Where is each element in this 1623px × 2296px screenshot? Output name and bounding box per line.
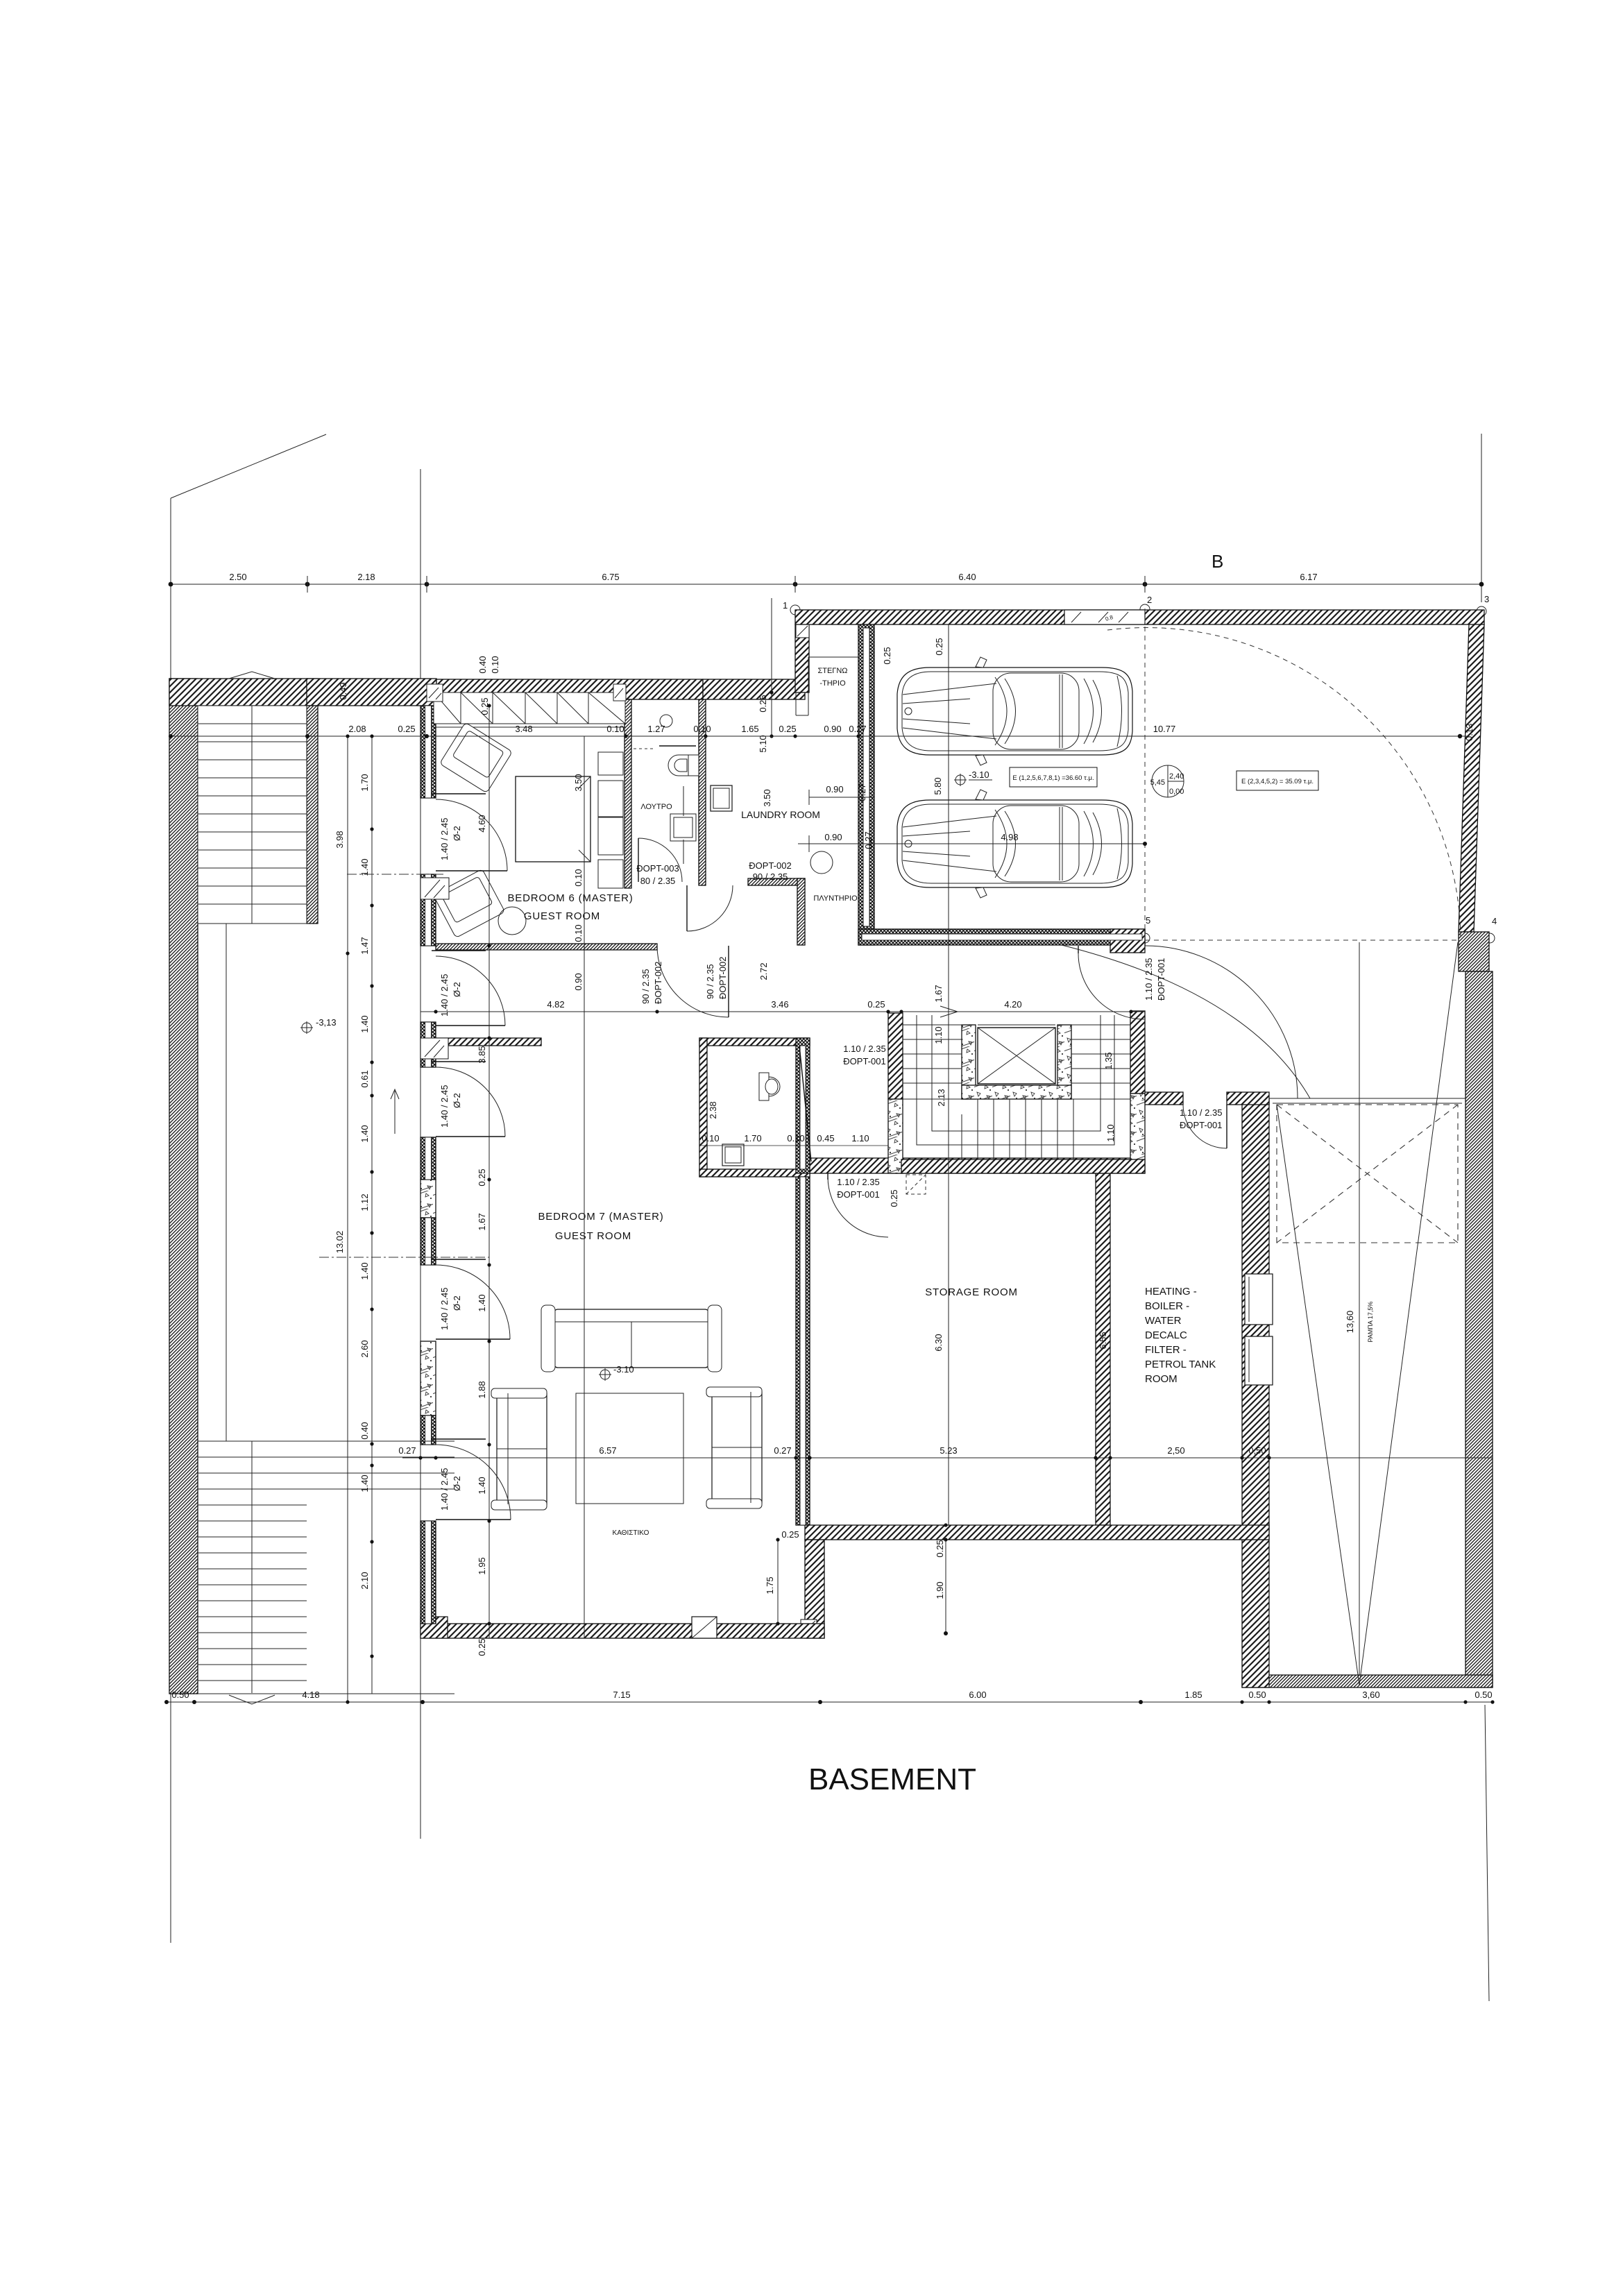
svg-text:1.35: 1.35	[1103, 1052, 1114, 1069]
svg-text:0.10: 0.10	[787, 1133, 804, 1143]
svg-text:0,50: 0,50	[1248, 1445, 1266, 1456]
svg-text:2.60: 2.60	[359, 1340, 370, 1357]
svg-text:3.85: 3.85	[477, 1046, 487, 1063]
svg-text:6.55: 6.55	[1098, 1332, 1108, 1349]
svg-text:Ø-2: Ø-2	[452, 1295, 462, 1311]
svg-text:1.85: 1.85	[1184, 1690, 1202, 1700]
svg-text:0.50: 0.50	[171, 1690, 189, 1700]
svg-text:-3.10: -3.10	[613, 1364, 634, 1375]
svg-text:FILTER -: FILTER -	[1145, 1344, 1187, 1356]
svg-text:3.50: 3.50	[573, 774, 584, 791]
svg-text:5.23: 5.23	[940, 1445, 957, 1456]
svg-text:-3,13: -3,13	[316, 1017, 337, 1028]
svg-text:13.02: 13.02	[334, 1231, 345, 1254]
svg-text:GUEST ROOM: GUEST ROOM	[524, 910, 600, 922]
svg-text:ΠΛΥΝΤΗΡΙΟ: ΠΛΥΝΤΗΡΙΟ	[813, 894, 858, 903]
svg-text:1.88: 1.88	[477, 1381, 487, 1398]
svg-text:7.15: 7.15	[613, 1690, 630, 1700]
svg-text:1.70: 1.70	[359, 774, 370, 791]
svg-text:ΚΑΘΙΣΤΙΚΟ: ΚΑΘΙΣΤΙΚΟ	[613, 1529, 649, 1537]
svg-text:1.40: 1.40	[359, 858, 370, 876]
svg-text:0.25: 0.25	[758, 695, 768, 712]
svg-text:GUEST ROOM: GUEST ROOM	[555, 1230, 631, 1242]
svg-text:1.10: 1.10	[1105, 1124, 1116, 1141]
svg-text:4.20: 4.20	[1004, 999, 1021, 1010]
svg-text:1.10: 1.10	[933, 1026, 944, 1044]
svg-text:0.25: 0.25	[867, 999, 885, 1010]
svg-text:1.40 / 2.45: 1.40 / 2.45	[439, 1288, 450, 1330]
svg-text:1.12: 1.12	[359, 1193, 370, 1211]
svg-text:0.61: 0.61	[359, 1070, 370, 1087]
svg-text:0.25: 0.25	[477, 1168, 487, 1186]
svg-text:WATER: WATER	[1145, 1315, 1182, 1327]
svg-text:0.40: 0.40	[359, 1422, 370, 1439]
svg-text:0.49: 0.49	[338, 682, 348, 699]
svg-text:0.27: 0.27	[398, 1445, 416, 1456]
svg-text:3.46: 3.46	[771, 999, 788, 1010]
svg-text:5: 5	[1146, 915, 1150, 926]
svg-text:0.25: 0.25	[781, 1529, 799, 1540]
svg-text:ĐOPT-001: ĐOPT-001	[1180, 1120, 1222, 1130]
svg-text:1.40: 1.40	[359, 1125, 370, 1142]
svg-text:3: 3	[1484, 594, 1489, 604]
svg-text:0.45: 0.45	[817, 1133, 834, 1143]
svg-text:0.27: 0.27	[774, 1445, 791, 1456]
svg-text:13,60: 13,60	[1345, 1311, 1355, 1334]
svg-text:1.40: 1.40	[359, 1262, 370, 1279]
svg-text:0.10: 0.10	[693, 724, 711, 734]
svg-text:6.00: 6.00	[969, 1690, 986, 1700]
svg-text:0.90: 0.90	[826, 784, 843, 794]
svg-text:5,45: 5,45	[1150, 779, 1165, 787]
svg-text:ĐOPT-001: ĐOPT-001	[837, 1189, 879, 1200]
svg-text:BEDROOM 7 (MASTER): BEDROOM 7 (MASTER)	[538, 1211, 663, 1223]
svg-text:BEDROOM 6 (MASTER): BEDROOM 6 (MASTER)	[507, 892, 633, 904]
svg-text:4: 4	[1492, 916, 1497, 926]
svg-text:0,00: 0,00	[1169, 788, 1184, 796]
svg-text:Ø-2: Ø-2	[452, 1476, 462, 1491]
svg-text:ĐOPT-002: ĐOPT-002	[653, 962, 663, 1004]
svg-text:6.40: 6.40	[958, 572, 976, 582]
svg-text:5.80: 5.80	[933, 777, 943, 794]
svg-text:2: 2	[1147, 595, 1152, 605]
svg-text:4.98: 4.98	[1001, 832, 1018, 842]
svg-text:Ø-2: Ø-2	[452, 1093, 462, 1108]
svg-text:PETROL TANK: PETROL TANK	[1145, 1359, 1216, 1370]
svg-text:1.40: 1.40	[359, 1015, 370, 1032]
svg-text:1.90: 1.90	[935, 1581, 945, 1599]
svg-text:BOILER -: BOILER -	[1145, 1300, 1189, 1312]
svg-text:0.27: 0.27	[857, 783, 867, 801]
svg-text:1.65: 1.65	[741, 724, 758, 734]
svg-text:1.95: 1.95	[477, 1557, 487, 1574]
svg-text:0.27: 0.27	[863, 831, 874, 849]
svg-text:1.27: 1.27	[647, 724, 665, 734]
svg-text:-ΤΗΡΙΟ: -ΤΗΡΙΟ	[819, 679, 846, 688]
svg-text:1.67: 1.67	[477, 1213, 487, 1230]
svg-text:6.75: 6.75	[602, 572, 619, 582]
svg-text:0.25: 0.25	[398, 724, 415, 734]
svg-text:E (1,2,5,6,7,8,1) =36.60 τ.μ.: E (1,2,5,6,7,8,1) =36.60 τ.μ.	[1012, 774, 1094, 782]
svg-text:2.13: 2.13	[936, 1089, 946, 1106]
svg-text:3,60: 3,60	[1362, 1690, 1379, 1700]
svg-text:0.10: 0.10	[702, 1133, 719, 1143]
svg-text:2.72: 2.72	[758, 962, 769, 980]
svg-text:0.10: 0.10	[573, 869, 584, 886]
svg-text:6.17: 6.17	[1300, 572, 1317, 582]
svg-text:2.18: 2.18	[357, 572, 375, 582]
svg-text:0.25: 0.25	[477, 1638, 487, 1656]
svg-text:3.48: 3.48	[515, 724, 532, 734]
svg-text:1.40 / 2.45: 1.40 / 2.45	[439, 974, 450, 1017]
svg-text:BASEMENT: BASEMENT	[808, 1762, 976, 1796]
svg-text:0.13: 0.13	[1464, 724, 1475, 741]
svg-text:Ø-2: Ø-2	[452, 982, 462, 997]
svg-text:3.50: 3.50	[762, 789, 772, 806]
svg-text:ĐOPT-003: ĐOPT-003	[636, 863, 679, 874]
svg-text:2.08: 2.08	[348, 724, 366, 734]
svg-text:LAUNDRY ROOM: LAUNDRY ROOM	[741, 809, 820, 820]
svg-text:0.25: 0.25	[935, 1540, 945, 1557]
svg-text:1.10 / 2.35: 1.10 / 2.35	[1144, 958, 1154, 1001]
svg-text:90 / 2.35: 90 / 2.35	[640, 969, 651, 1004]
svg-text:Ø-2: Ø-2	[452, 826, 462, 841]
svg-text:1.40 / 2.45: 1.40 / 2.45	[439, 1085, 450, 1128]
svg-text:2.38: 2.38	[708, 1101, 718, 1119]
svg-text:1.47: 1.47	[359, 937, 370, 954]
svg-text:1.10 / 2.35: 1.10 / 2.35	[837, 1177, 879, 1187]
svg-text:0.25: 0.25	[779, 724, 796, 734]
svg-text:-3.10: -3.10	[969, 769, 989, 780]
svg-text:0.90: 0.90	[824, 724, 841, 734]
svg-text:1.67: 1.67	[933, 985, 944, 1002]
svg-text:4.82: 4.82	[547, 999, 564, 1010]
svg-text:1.10: 1.10	[851, 1133, 869, 1143]
svg-text:0.10: 0.10	[490, 656, 500, 673]
svg-text:0.90: 0.90	[573, 973, 584, 990]
svg-text:1.40: 1.40	[477, 1477, 487, 1494]
svg-text:1.70: 1.70	[744, 1133, 761, 1143]
svg-text:ΛΟΥΤΡΟ: ΛΟΥΤΡΟ	[640, 803, 672, 811]
svg-text:1.40 / 2.45: 1.40 / 2.45	[439, 818, 450, 860]
svg-text:0.90: 0.90	[824, 832, 842, 842]
svg-text:STORAGE ROOM: STORAGE ROOM	[925, 1286, 1018, 1298]
svg-text:HEATING -: HEATING -	[1145, 1286, 1197, 1298]
svg-text:1.75: 1.75	[765, 1576, 775, 1594]
svg-text:6.30: 6.30	[933, 1334, 944, 1351]
svg-text:4.18: 4.18	[302, 1690, 319, 1700]
svg-text:ROOM: ROOM	[1145, 1373, 1178, 1385]
svg-text:0.50: 0.50	[1248, 1690, 1266, 1700]
svg-text:ĐOPT-002: ĐOPT-002	[749, 860, 791, 871]
svg-text:0.25: 0.25	[882, 647, 892, 664]
svg-text:1.10 / 2.35: 1.10 / 2.35	[1180, 1107, 1222, 1118]
svg-text:90 / 2.35: 90 / 2.35	[705, 964, 715, 999]
svg-text:ΡΑΜΠΑ 17,5%: ΡΑΜΠΑ 17,5%	[1367, 1302, 1374, 1343]
svg-text:2.10: 2.10	[359, 1572, 370, 1589]
svg-text:B: B	[1212, 551, 1223, 572]
svg-text:0.50: 0.50	[1475, 1690, 1492, 1700]
svg-text:ĐOPT-001: ĐOPT-001	[843, 1056, 885, 1066]
svg-text:10.77: 10.77	[1153, 724, 1176, 734]
svg-text:80 / 2.35: 80 / 2.35	[640, 876, 676, 886]
svg-text:DECALC: DECALC	[1145, 1329, 1187, 1341]
svg-text:90 / 2.35: 90 / 2.35	[753, 871, 788, 882]
svg-text:4.60: 4.60	[477, 815, 487, 832]
svg-text:1.40: 1.40	[477, 1294, 487, 1311]
svg-text:2,50: 2,50	[1167, 1445, 1184, 1456]
svg-text:1.40: 1.40	[359, 1474, 370, 1492]
svg-text:3.98: 3.98	[334, 831, 345, 848]
svg-text:0.25: 0.25	[934, 638, 944, 655]
svg-text:1: 1	[783, 600, 788, 611]
svg-text:0.25: 0.25	[479, 697, 490, 715]
svg-text:0.25: 0.25	[889, 1189, 899, 1207]
svg-text:0.10: 0.10	[573, 924, 584, 942]
svg-text:6.57: 6.57	[599, 1445, 616, 1456]
svg-text:ΣΤΕΓΝΩ: ΣΤΕΓΝΩ	[817, 667, 847, 675]
svg-text:1.10 / 2.35: 1.10 / 2.35	[843, 1044, 885, 1054]
svg-text:ĐOPT-002: ĐOPT-002	[717, 957, 728, 999]
svg-text:0.27: 0.27	[849, 724, 866, 734]
svg-text:2.50: 2.50	[229, 572, 246, 582]
svg-text:0.40: 0.40	[477, 656, 488, 673]
svg-text:0.10: 0.10	[606, 724, 624, 734]
svg-text:1.40 / 2.45: 1.40 / 2.45	[439, 1468, 450, 1511]
svg-text:2,40: 2,40	[1169, 772, 1184, 781]
svg-text:5.10: 5.10	[758, 735, 768, 752]
svg-text:E (2,3,4,5,2) = 35.09 τ.μ.: E (2,3,4,5,2) = 35.09 τ.μ.	[1241, 778, 1314, 785]
